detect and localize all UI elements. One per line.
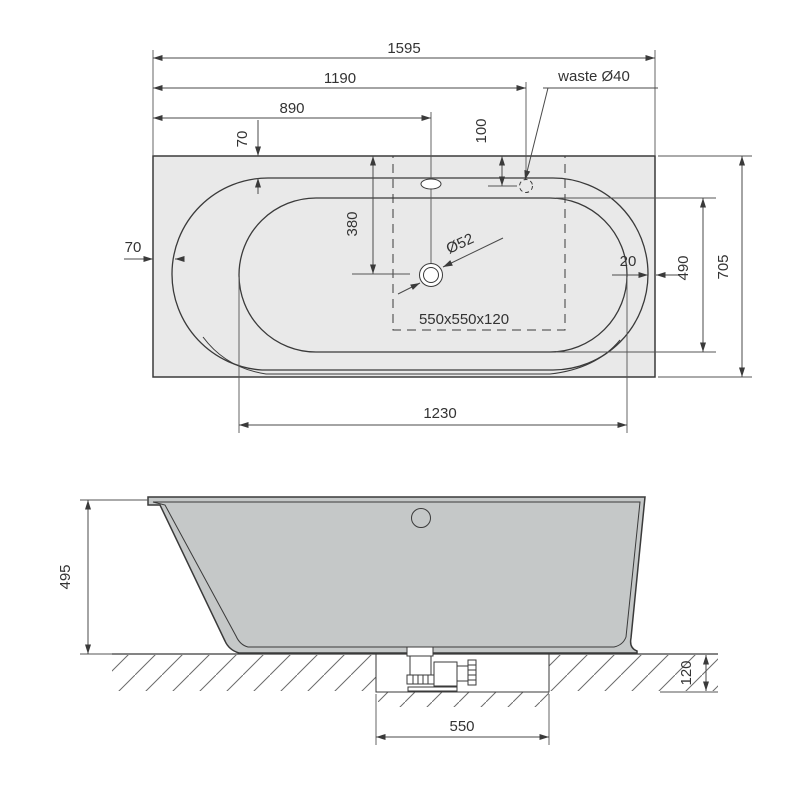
trap-elbow <box>434 662 457 686</box>
dim-label-inner-length: 1230 <box>423 405 456 422</box>
dim-label-rim-left-offset: 70 <box>125 239 142 256</box>
drain-body <box>410 656 431 675</box>
elevation-view: 495 120 550 <box>57 497 718 745</box>
dim-label-rim-right-gap: 20 <box>620 253 637 270</box>
drain-flange <box>407 647 433 656</box>
dim-label-rim-top-offset: 70 <box>234 131 251 148</box>
plan-view: 1595 1190 890 waste Ø40 70 100 380 70 20… <box>124 40 752 433</box>
drain-nut <box>407 675 434 684</box>
waste-label: waste Ø40 <box>557 68 630 85</box>
overflow-hole <box>421 179 441 189</box>
dim-label-recess-width: 550 <box>449 718 474 735</box>
outlet-pipe <box>457 666 468 681</box>
hatch-left <box>112 655 376 691</box>
technical-drawing: 1595 1190 890 waste Ø40 70 100 380 70 20… <box>0 0 800 800</box>
dim-label-recess-depth: 120 <box>678 660 695 685</box>
dim-label-overflow-from-left: 890 <box>279 100 304 117</box>
elevation-tub-outer <box>148 497 645 653</box>
drain-hole <box>420 264 443 287</box>
dim-label-waste-from-left: 1190 <box>324 70 356 87</box>
dim-label-drain-from-top: 380 <box>344 211 361 236</box>
technical-drawing-page: 1595 1190 890 waste Ø40 70 100 380 70 20… <box>0 0 800 800</box>
hatch-under-recess <box>378 692 549 707</box>
drain-base-plate <box>408 687 457 691</box>
dim-label-overall-width: 705 <box>715 254 732 279</box>
dim-label-inner-width: 490 <box>675 255 692 280</box>
dim-label-waste-from-top: 100 <box>473 118 490 143</box>
dim-label-height: 495 <box>57 564 74 589</box>
dim-label-overall-length: 1595 <box>387 40 420 57</box>
recess-size-label: 550x550x120 <box>419 311 509 328</box>
plan-body <box>153 156 655 377</box>
outlet-coupling <box>468 660 476 685</box>
